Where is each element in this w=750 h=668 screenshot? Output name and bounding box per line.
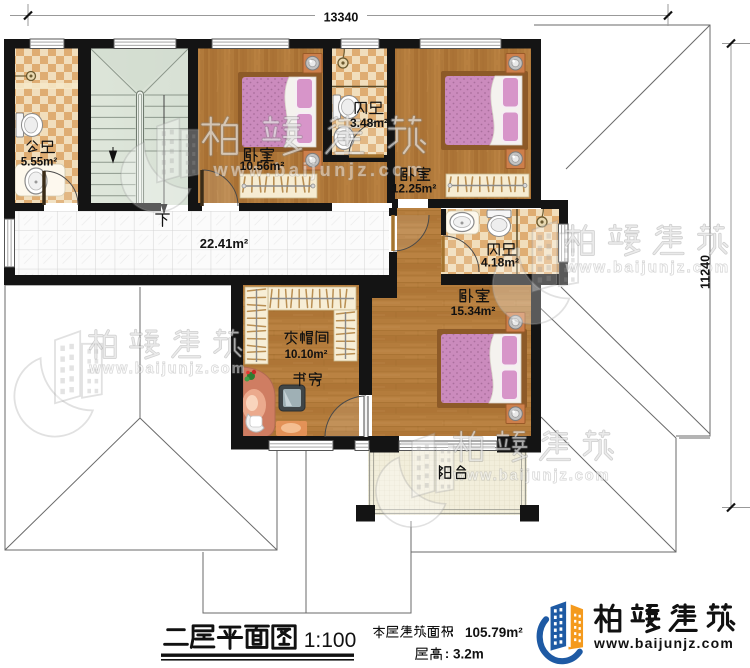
svg-text:www.baijunjz.com: www.baijunjz.com [88,361,246,377]
svg-text:1:100: 1:100 [304,629,357,652]
svg-text:105.79m²: 105.79m² [465,625,523,640]
svg-text:15.34m²: 15.34m² [451,304,496,318]
svg-text:3.48m²: 3.48m² [350,116,388,130]
svg-text:5.55m²: 5.55m² [21,157,58,169]
svg-text:22.41m²: 22.41m² [200,236,249,251]
svg-text:10.10m²: 10.10m² [285,349,328,361]
svg-text:13340: 13340 [324,11,359,25]
svg-text:www.baijunjz.com: www.baijunjz.com [452,468,610,484]
svg-text:4.18m²: 4.18m² [481,256,519,270]
svg-text::: : [445,646,449,661]
svg-text:www.baijunjz.com: www.baijunjz.com [593,635,734,651]
svg-text:11240: 11240 [699,255,713,289]
svg-text:3.2m: 3.2m [453,647,484,662]
svg-text::: : [450,624,454,639]
svg-text:12.25m²: 12.25m² [392,182,437,196]
svg-text:10.56m²: 10.56m² [240,159,285,173]
